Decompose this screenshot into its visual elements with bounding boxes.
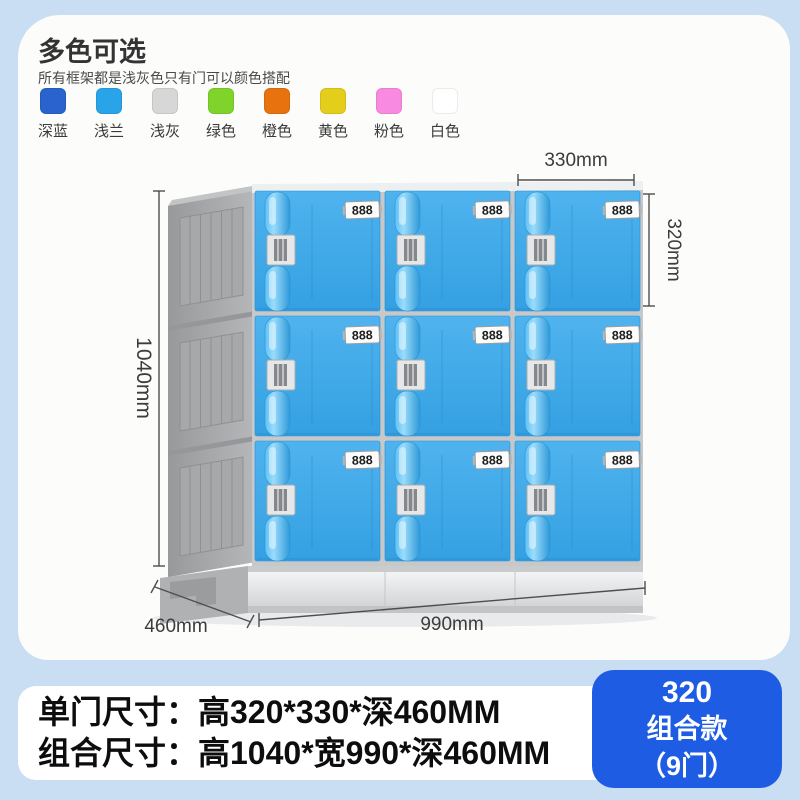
color-swatch-dark-blue: 深蓝 [36, 88, 70, 141]
color-swatch-orange: 橙色 [260, 88, 294, 141]
color-label: 粉色 [374, 120, 404, 141]
color-swatch-green: 绿色 [204, 88, 238, 141]
color-chip [264, 88, 290, 114]
color-label: 橙色 [262, 120, 292, 141]
page-background: { "colors_section": { "title": "多色可选", "… [0, 0, 800, 800]
color-swatch-pink: 粉色 [372, 88, 406, 141]
color-chip [152, 88, 178, 114]
color-label: 绿色 [206, 120, 236, 141]
color-label: 深蓝 [38, 120, 68, 141]
color-label: 黄色 [318, 120, 348, 141]
color-chip [40, 88, 66, 114]
color-label: 白色 [430, 120, 460, 141]
color-chip [96, 88, 122, 114]
color-swatch-white: 白色 [428, 88, 462, 141]
color-swatch-row: 深蓝 浅兰 浅灰 绿色 橙色 黄色 粉色 白色 [36, 88, 462, 141]
color-chip [376, 88, 402, 114]
badge-model-type: 组合款 [647, 711, 728, 748]
section-subtitle: 所有框架都是浅灰色只有门可以颜色搭配 [38, 68, 290, 88]
color-chip [320, 88, 346, 114]
color-chip [208, 88, 234, 114]
badge-model-number: 320 [662, 674, 712, 711]
color-chip [432, 88, 458, 114]
color-label: 浅兰 [94, 120, 124, 141]
badge-door-count: （9门） [639, 748, 735, 785]
model-badge: 320 组合款 （9门） [592, 670, 782, 788]
color-label: 浅灰 [150, 120, 180, 141]
color-swatch-light-gray: 浅灰 [148, 88, 182, 141]
color-swatch-yellow: 黄色 [316, 88, 350, 141]
color-swatch-light-blue: 浅兰 [92, 88, 126, 141]
section-title: 多色可选 [38, 30, 146, 69]
